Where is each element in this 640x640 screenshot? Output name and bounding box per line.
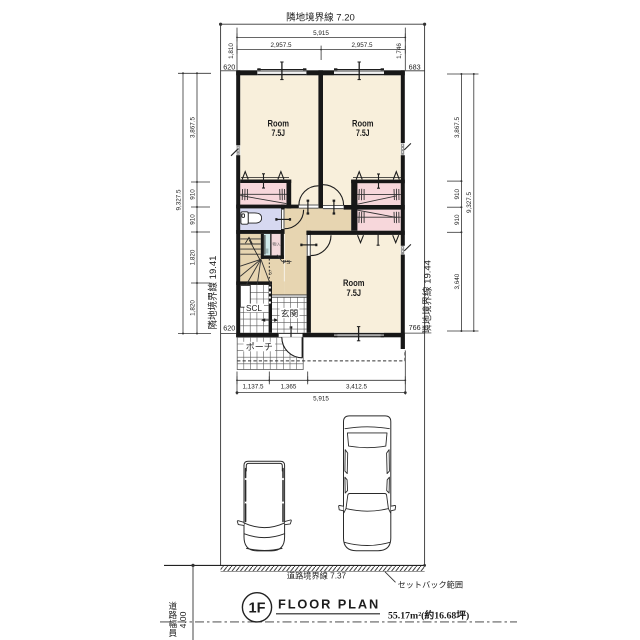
svg-text:4.00: 4.00 <box>178 611 188 628</box>
svg-text:9,327.5: 9,327.5 <box>466 192 473 214</box>
svg-text:2,957.5: 2,957.5 <box>351 42 373 49</box>
svg-text:セットバック範囲: セットバック範囲 <box>398 580 464 590</box>
svg-text:55.17m²(約16.68坪): 55.17m²(約16.68坪) <box>388 609 469 622</box>
svg-text:5,915: 5,915 <box>313 396 329 403</box>
svg-text:隣地境界線 19.41: 隣地境界線 19.41 <box>207 256 219 330</box>
svg-text:2,957.5: 2,957.5 <box>270 42 292 49</box>
svg-text:620: 620 <box>223 323 235 332</box>
svg-text:7.5J: 7.5J <box>272 128 286 139</box>
svg-text:道路境界線 7.37: 道路境界線 7.37 <box>287 571 347 581</box>
svg-text:1,810: 1,810 <box>228 43 235 59</box>
svg-text:PS: PS <box>283 260 291 266</box>
svg-text:1,820: 1,820 <box>189 300 196 316</box>
svg-text:620: 620 <box>223 62 235 71</box>
svg-text:隣地境界線 7.20: 隣地境界線 7.20 <box>286 11 355 23</box>
svg-text:5,915: 5,915 <box>313 30 329 37</box>
svg-text:玄関: 玄関 <box>281 308 299 319</box>
svg-text:7.5J: 7.5J <box>356 128 370 139</box>
svg-text:910: 910 <box>189 189 196 200</box>
svg-text:766: 766 <box>409 323 421 332</box>
svg-text:7.5J: 7.5J <box>347 288 362 299</box>
svg-text:FLOOR PLAN: FLOOR PLAN <box>278 597 380 612</box>
svg-text:910: 910 <box>189 214 196 225</box>
svg-text:1F: 1F <box>249 600 266 616</box>
svg-text:ポーチ: ポーチ <box>246 342 273 352</box>
svg-text:3,867.5: 3,867.5 <box>189 117 196 139</box>
svg-text:SCL: SCL <box>246 304 262 313</box>
svg-text:1,746: 1,746 <box>396 43 403 59</box>
svg-text:1,820: 1,820 <box>189 249 196 265</box>
svg-text:910: 910 <box>454 214 461 225</box>
svg-text:683: 683 <box>409 62 421 71</box>
svg-text:隣地境界線 19.44: 隣地境界線 19.44 <box>422 260 434 334</box>
svg-text:9,327.5: 9,327.5 <box>175 189 182 211</box>
svg-text:1,365: 1,365 <box>281 383 297 390</box>
svg-text:物入: 物入 <box>273 241 281 247</box>
svg-text:3,867.5: 3,867.5 <box>454 117 461 139</box>
svg-text:1,137.5: 1,137.5 <box>242 383 264 390</box>
svg-text:910: 910 <box>454 188 461 199</box>
svg-text:員: 員 <box>169 628 178 638</box>
svg-text:3,640: 3,640 <box>454 273 461 289</box>
svg-text:3,412.5: 3,412.5 <box>346 383 368 390</box>
